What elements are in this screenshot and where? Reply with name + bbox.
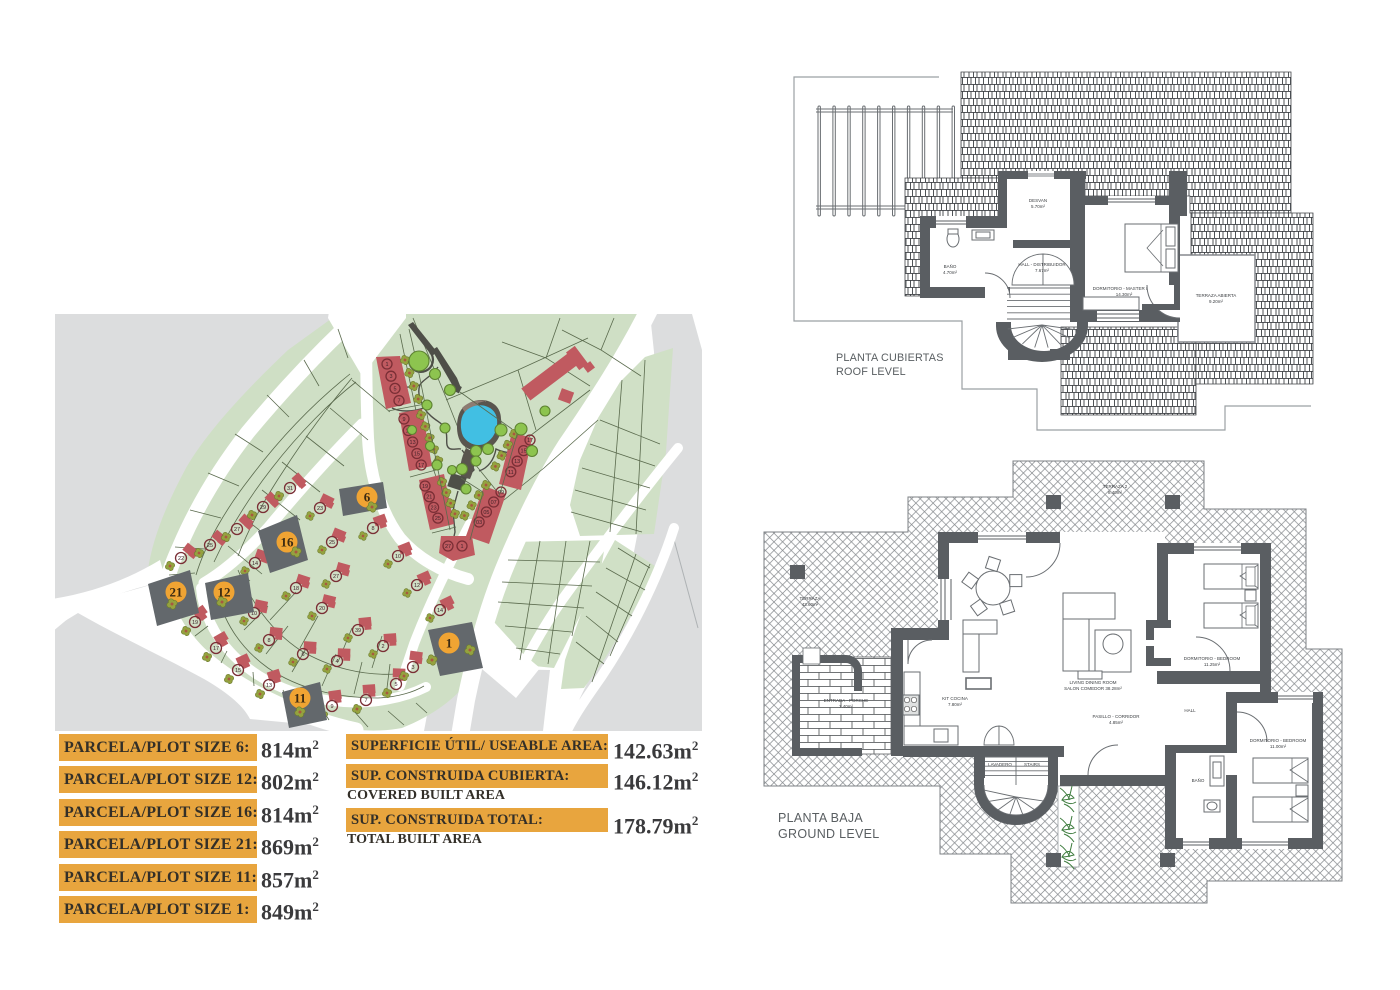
svg-text:HALL: HALL bbox=[1184, 708, 1196, 713]
svg-text:LIVING DINING ROOM: LIVING DINING ROOM bbox=[1069, 680, 1116, 685]
svg-text:PASILLO - CORRIDOR: PASILLO - CORRIDOR bbox=[1093, 714, 1141, 719]
svg-text:TERRAZA: TERRAZA bbox=[799, 596, 820, 601]
svg-text:7.80m²: 7.80m² bbox=[948, 702, 963, 707]
svg-text:KIT COCINA: KIT COCINA bbox=[942, 696, 968, 701]
svg-text:8.40m²: 8.40m² bbox=[1108, 490, 1123, 495]
svg-text:DORMITORIO - BEDROOM: DORMITORIO - BEDROOM bbox=[1250, 738, 1307, 743]
svg-text:SALON COMEDOR 38.28m²: SALON COMEDOR 38.28m² bbox=[1064, 686, 1122, 691]
svg-text:TERRAZA 2: TERRAZA 2 bbox=[1103, 484, 1128, 489]
svg-text:BAÑO: BAÑO bbox=[1192, 777, 1205, 783]
svg-text:43.60m²: 43.60m² bbox=[802, 602, 819, 607]
svg-text:11.00m²: 11.00m² bbox=[1270, 744, 1287, 749]
svg-text:4.85m²: 4.85m² bbox=[1109, 720, 1124, 725]
svg-text:GROUND LEVEL: GROUND LEVEL bbox=[778, 827, 880, 841]
svg-text:7.40m²: 7.40m² bbox=[839, 704, 854, 709]
svg-text:11.25m²: 11.25m² bbox=[1204, 662, 1221, 667]
svg-text:PLANTA BAJA: PLANTA BAJA bbox=[778, 811, 863, 825]
svg-text:ENTRADA - PORCHE: ENTRADA - PORCHE bbox=[824, 698, 869, 703]
svg-text:DORMITORIO - BEDROOM: DORMITORIO - BEDROOM bbox=[1184, 656, 1241, 661]
